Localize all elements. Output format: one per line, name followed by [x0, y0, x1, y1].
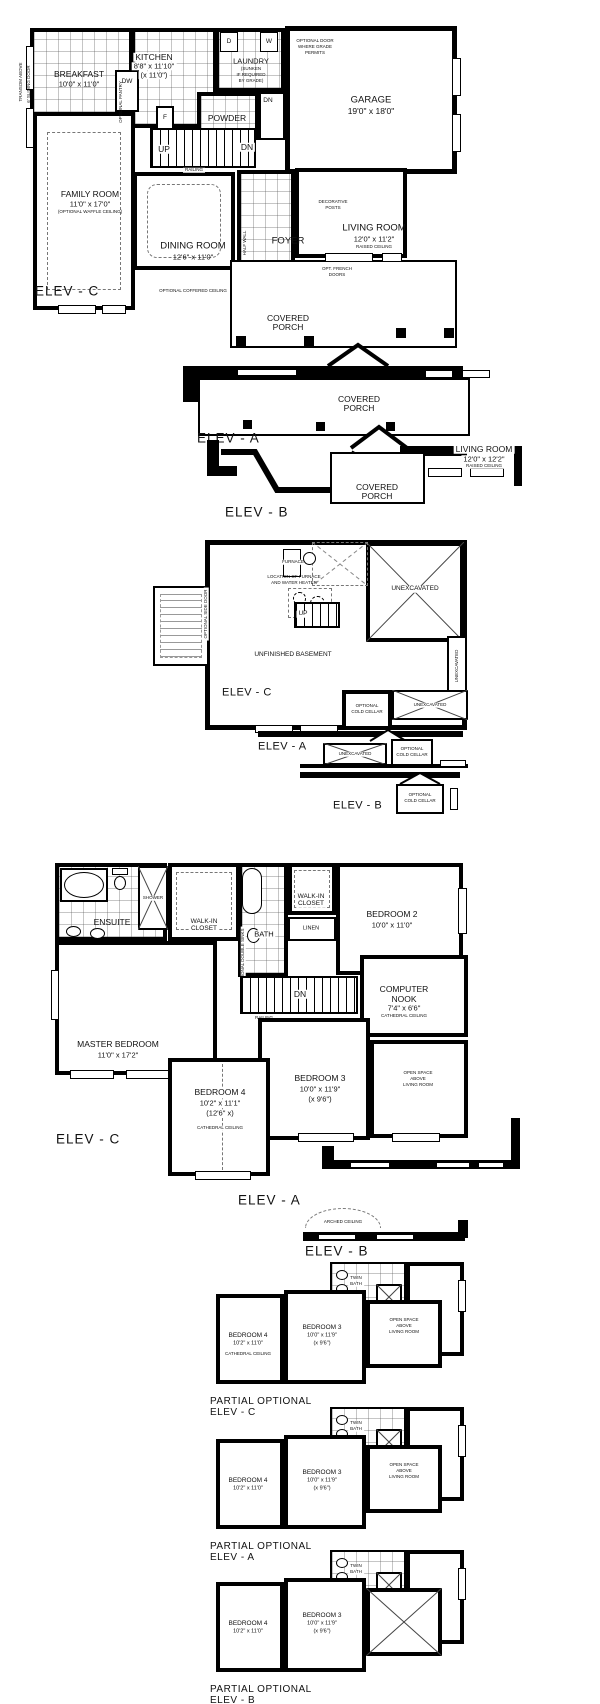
- window: [458, 1568, 466, 1600]
- partial-label-2: ELEV - B: [210, 1696, 255, 1704]
- bedroom4-dims: 10'2" x 11'0": [231, 1629, 265, 1635]
- floor-plan-sheet: TRANSOM ABOVE 6' SLIDING DOOR BREAKFAST …: [0, 0, 600, 1704]
- bath-label-2: BATH: [348, 1570, 364, 1575]
- bedroom3-dims: 10'0" x 11'9": [305, 1621, 339, 1627]
- bath-label-1: TWIN: [348, 1564, 364, 1569]
- bedroom4-label: BEDROOM 4: [226, 1621, 269, 1628]
- sink: [336, 1558, 348, 1568]
- partial-label-1: PARTIAL OPTIONAL: [210, 1685, 312, 1695]
- bedroom3-dims2: (x 9'6"): [311, 1629, 332, 1635]
- bedroom3-label: BEDROOM 3: [300, 1613, 343, 1620]
- partial-elev-b: TWIN BATH BEDROOM 4 10'2" x 11'0" BEDROO…: [0, 0, 600, 1704]
- hatch-x: [366, 1588, 442, 1656]
